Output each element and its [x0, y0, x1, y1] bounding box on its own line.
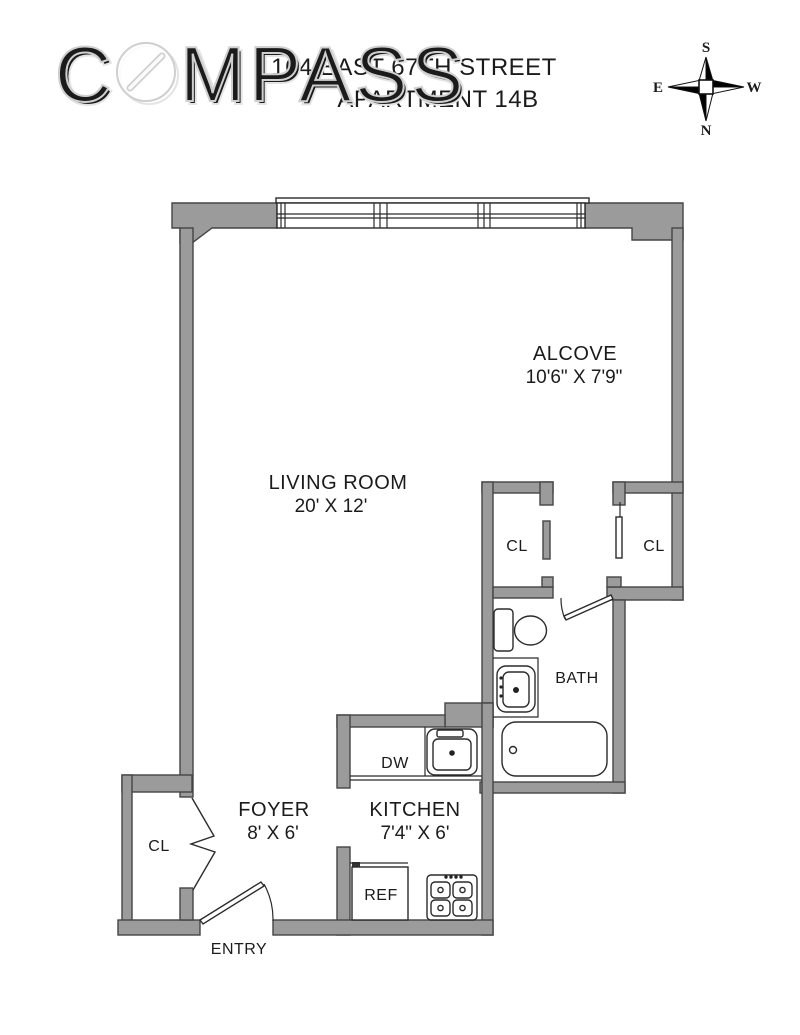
wall-bottom-left [118, 920, 200, 935]
closet-right-door-leaf [616, 517, 622, 558]
wall-closet-left-jamb [540, 482, 553, 505]
toilet-bowl [515, 616, 547, 645]
wall-kitchen-right [482, 703, 493, 935]
wall-bath-right [613, 600, 625, 793]
bath-fixtures [493, 609, 607, 776]
wall-bottom [273, 920, 493, 935]
entry-door-leaf [200, 882, 264, 924]
wall-bath-bottom [480, 782, 625, 793]
closet-label-right: CL [643, 538, 664, 555]
bathroom-door-leaf [564, 595, 613, 620]
alcove-dims: 10'6" X 7'9" [526, 367, 623, 388]
wall-kitchen-top [337, 715, 445, 727]
bathroom-door-swing [561, 598, 565, 619]
kitchen-label: KITCHEN [369, 799, 460, 821]
living-room-dims: 20' X 12' [295, 496, 368, 517]
entry-label: ENTRY [211, 941, 267, 958]
closet-label-left: CL [506, 538, 527, 555]
kitchen-dims: 7'4" X 6' [381, 823, 450, 844]
living-room-label: LIVING ROOM [269, 472, 408, 494]
wall-closet-right-bottom [607, 587, 683, 600]
wall-entry-jamb [180, 888, 193, 920]
compass-rose: S N E W [653, 40, 762, 139]
closet-label-foyer: CL [148, 838, 169, 855]
wall-bath-left [482, 482, 493, 727]
wall-closet-right-stub [607, 577, 621, 587]
doors [191, 502, 622, 924]
kitchen-sink-drain [449, 750, 455, 756]
kitchen-faucet [437, 730, 463, 737]
refrigerator-label: REF [364, 887, 398, 904]
foyer-dims: 8' X 6' [247, 823, 299, 844]
apartment-title: APARTMENT 14B [337, 86, 538, 114]
wall-right [672, 228, 683, 600]
compass-west-label: W [747, 80, 762, 96]
wall-closet-right-jamb [613, 482, 625, 505]
wall-closet-left-stub [542, 577, 553, 587]
compass-north-label: N [701, 123, 712, 139]
closet-bifold-door [191, 798, 215, 890]
wall-left [180, 228, 193, 797]
wall-top-right-pilaster [585, 203, 683, 240]
address-title: 164 EAST 67TH STREET [271, 54, 557, 82]
window-frame [277, 203, 585, 228]
room-labels: LIVING ROOM 20' X 12' ALCOVE 10'6" X 7'9… [148, 343, 664, 958]
toilet-tank [494, 609, 513, 651]
dishwasher-label: DW [381, 755, 409, 772]
wall-kitchen-left-upper [337, 715, 350, 788]
compass-east-label: E [653, 80, 663, 96]
floorplan-page: { "title": { "line1": "164 EAST 67TH STR… [0, 0, 800, 1035]
entry-door-swing [264, 884, 273, 921]
wall-foyer-closet-left [122, 775, 132, 933]
bath-label: BATH [555, 670, 598, 687]
window-band [276, 198, 589, 228]
compass-center-square [699, 80, 713, 94]
foyer-label: FOYER [238, 799, 309, 821]
bathtub-drain [510, 747, 517, 754]
wall-closet-left-bottom [493, 587, 553, 598]
vanity-drain [513, 687, 519, 693]
alcove-label: ALCOVE [533, 343, 617, 365]
bathtub [502, 722, 607, 776]
compass-south-label: S [702, 40, 710, 56]
window-sill [276, 198, 589, 203]
floor-plan: LIVING ROOM 20' X 12' ALCOVE 10'6" X 7'9… [0, 0, 800, 1035]
closet-pocket-door [543, 521, 550, 559]
